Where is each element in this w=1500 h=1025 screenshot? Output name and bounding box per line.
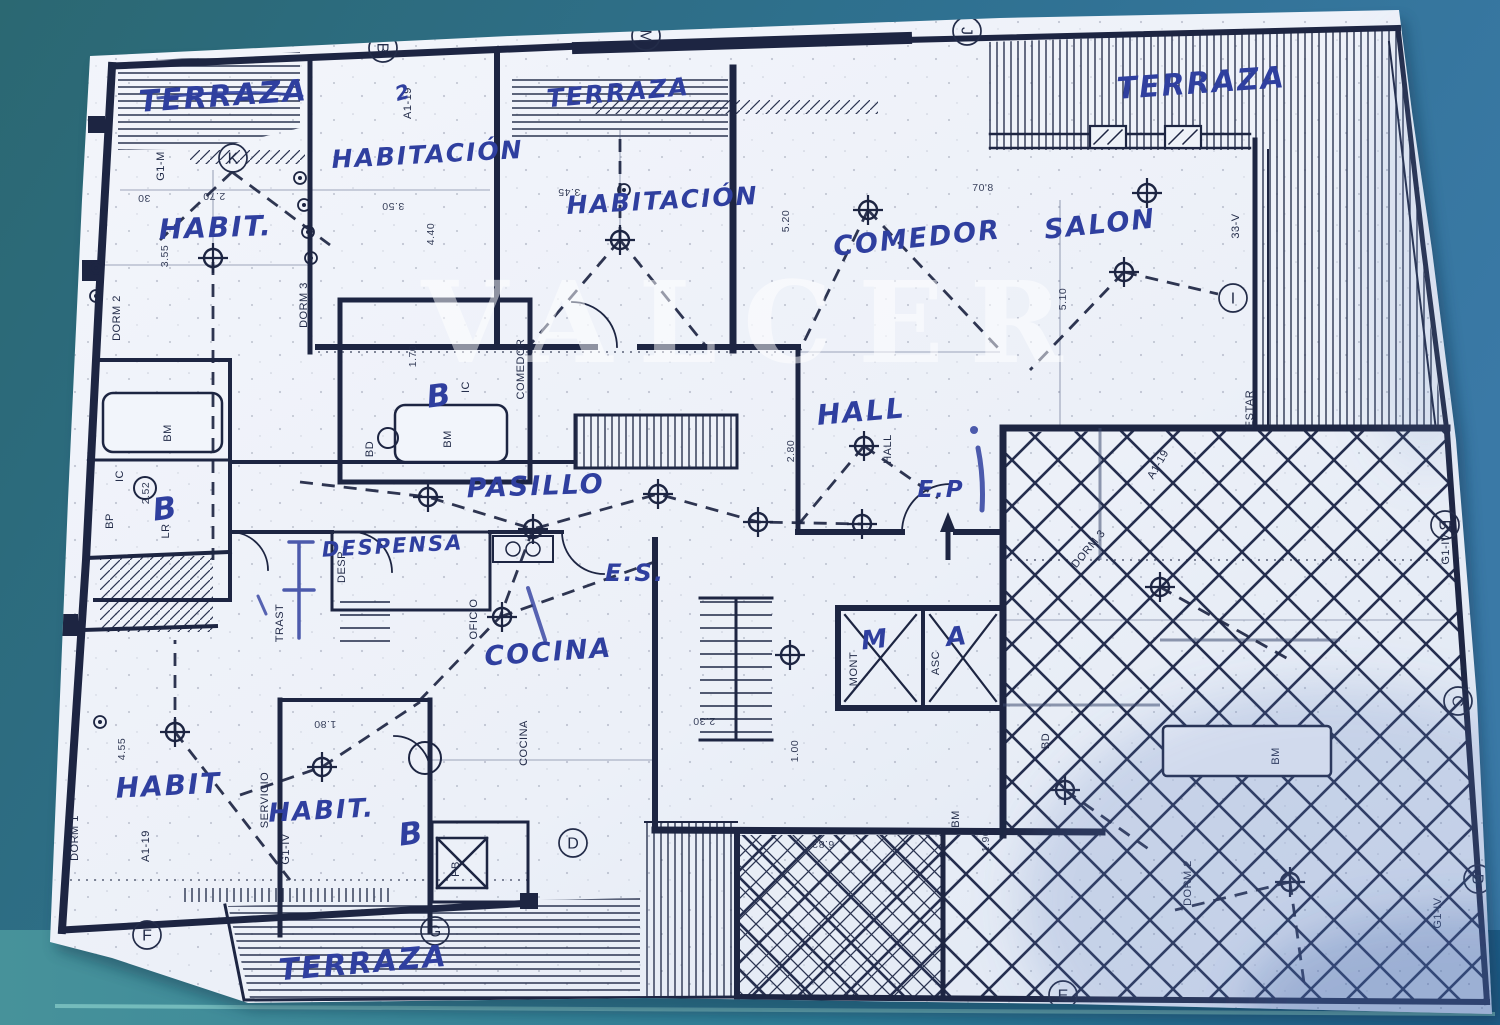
printed-dimension: 1.00	[789, 740, 801, 762]
printed-dimension: 2.80	[785, 440, 797, 462]
printed-label: MONT	[848, 652, 860, 686]
section-marker-letter: B	[1436, 520, 1453, 531]
floor-plan-canvas: DORM 2DORM 3DORM 1SERVICIOCOMEDORHALLOFI…	[0, 0, 1500, 1025]
printed-label: BD	[1040, 733, 1052, 749]
printed-dimension: 70'8	[972, 182, 994, 194]
window-sill-hatch-3	[180, 888, 390, 902]
handwritten-label: HABIT.	[158, 209, 273, 246]
service-stair-treads	[340, 600, 390, 652]
printed-label: G1-IV	[280, 833, 292, 864]
handwritten-label: A	[943, 621, 970, 653]
printed-label: BP	[104, 513, 116, 529]
section-marker-letter: J	[958, 27, 975, 35]
printed-dimension: 1.70	[407, 345, 419, 367]
bathtub-1	[103, 393, 222, 452]
wall-block-3	[62, 614, 78, 636]
printed-label: OFICIO	[468, 599, 480, 640]
printed-dimension: 2.70	[203, 190, 225, 202]
handwritten-label: PASILLO	[466, 469, 605, 505]
handwritten-label: HABIT.	[268, 793, 376, 829]
printed-label: ESTAR	[1244, 390, 1256, 428]
printed-label: BM	[442, 430, 454, 448]
printed-label: BD	[364, 441, 376, 457]
printed-dimension: 30	[138, 192, 151, 204]
photo-of-floor-plan: DORM 2DORM 3DORM 1SERVICIOCOMEDORHALLOFI…	[0, 0, 1500, 1025]
section-marker-letter: K	[228, 151, 239, 168]
printed-label: DORM 2	[111, 295, 123, 341]
printed-label: IC	[114, 470, 126, 482]
printed-label: G1-M	[155, 151, 167, 181]
handwritten-label: M	[860, 624, 891, 657]
section-marker-letter: D	[567, 836, 579, 853]
printed-dimension: 6.83	[812, 838, 834, 850]
printed-dimension: 4.55	[116, 738, 128, 760]
pen-dot	[970, 426, 978, 434]
handwritten-label: E.S.	[605, 559, 665, 587]
watermark-text: VALCER	[420, 258, 1088, 389]
wall-core-bottom	[655, 830, 1102, 832]
adjacent-kitchen-crosshatch	[740, 835, 943, 996]
small-terrace-patch-hatch	[100, 556, 213, 632]
printed-label: TRAST	[274, 604, 286, 643]
section-marker-letter: F	[142, 928, 152, 945]
handwritten-label: E.P	[917, 477, 964, 503]
section-marker-letter: G	[429, 924, 441, 941]
printed-label: A1-19	[140, 830, 152, 862]
wall-block-4	[520, 893, 538, 909]
printed-label: 33-V	[1230, 213, 1242, 238]
printed-label: BM	[162, 424, 174, 442]
printed-label: DORM 1	[69, 815, 81, 861]
section-marker-letter: I	[1231, 291, 1235, 308]
printed-dimension: 1.80	[314, 718, 336, 730]
printed-dimension: 4.40	[425, 223, 437, 245]
corridor-closet-hatch	[575, 415, 737, 468]
printed-label: HALL	[882, 434, 894, 464]
printed-dimension: 5.20	[780, 210, 792, 232]
handwritten-label: HABIT	[115, 766, 223, 805]
section-marker-letter: B	[374, 43, 391, 54]
printed-dimension: 2.30	[693, 715, 715, 727]
printed-dimension: 3.50	[382, 200, 404, 212]
printed-dimension: 3.55	[159, 245, 171, 267]
printed-label: BM	[950, 810, 962, 828]
printed-label: ASC	[930, 651, 942, 675]
printed-label: DORM 3	[298, 282, 310, 328]
printed-dimension: 1.90	[980, 830, 992, 852]
bottom-light-well-hatch	[645, 822, 737, 998]
section-marker-letter: M	[637, 29, 654, 42]
handwritten-label: B	[150, 489, 180, 528]
handwritten-label: B	[396, 814, 426, 853]
printed-label: COCINA	[518, 720, 530, 766]
printed-label: PB	[450, 861, 462, 877]
wall-block-1	[88, 116, 105, 133]
